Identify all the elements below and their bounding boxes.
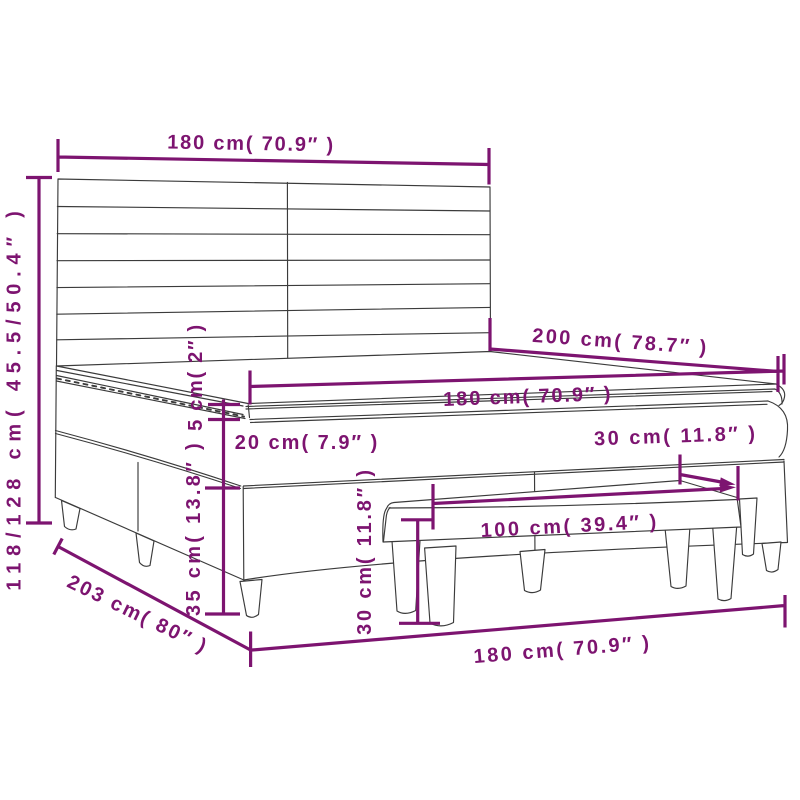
svg-text:30 cm( 11.8″ ): 30 cm( 11.8″ ) xyxy=(354,467,376,635)
svg-text:180 cm( 70.9″ ): 180 cm( 70.9″ ) xyxy=(167,132,335,157)
svg-text:5 cm( 2″ ): 5 cm( 2″ ) xyxy=(185,323,207,431)
svg-text:118/128 cm( 45.5/50.4″ ): 118/128 cm( 45.5/50.4″ ) xyxy=(4,204,26,590)
svg-text:20 cm( 7.9″ ): 20 cm( 7.9″ ) xyxy=(235,432,380,454)
svg-text:35 cm( 13.8″ ): 35 cm( 13.8″ ) xyxy=(183,440,205,616)
